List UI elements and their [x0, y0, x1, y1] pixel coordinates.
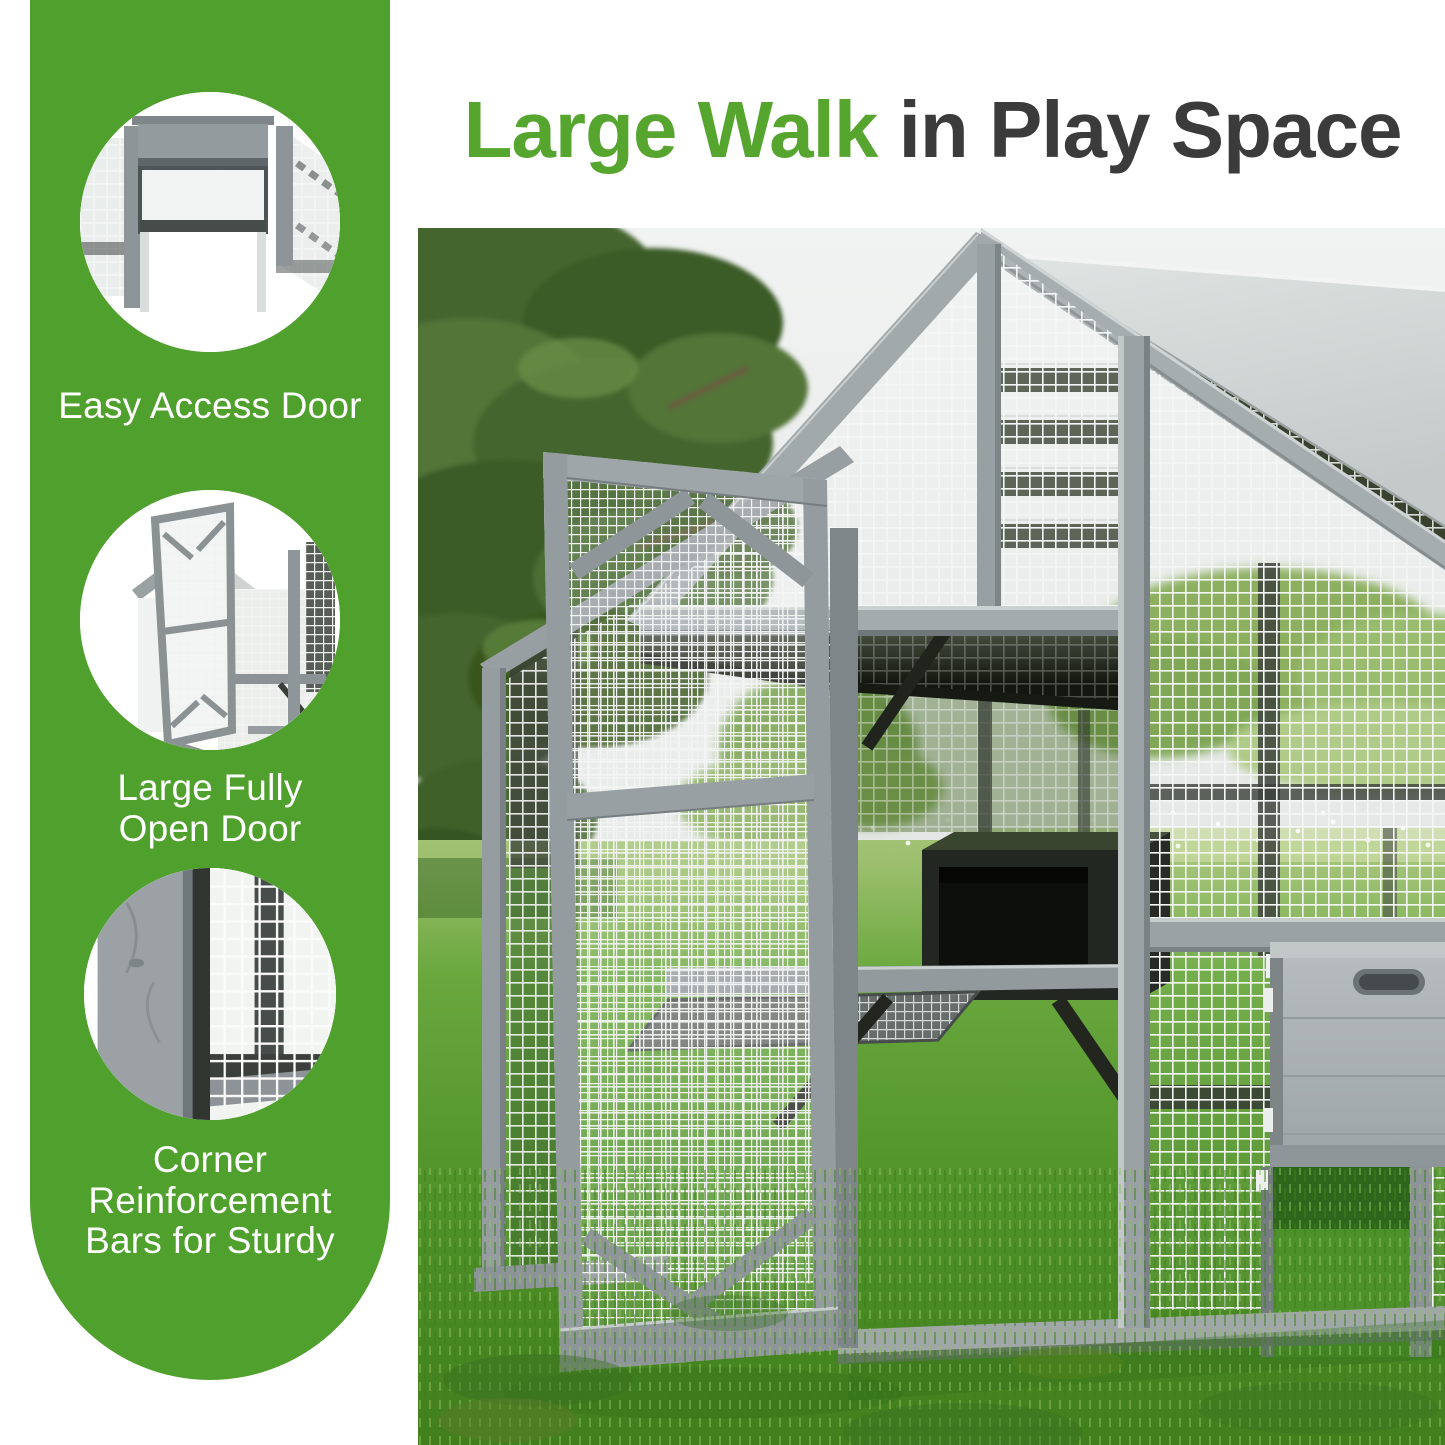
feature-thumb-corner-reinforcement [84, 868, 336, 1120]
feature-label-line: Easy Access Door [30, 386, 390, 427]
page-title: Large Walk in Play Space [420, 84, 1445, 176]
foreground-grass [418, 1168, 1445, 1445]
title-rest: in Play Space [877, 85, 1401, 174]
feature-label: Easy Access Door [30, 386, 390, 427]
feature-label-line: Large Fully [30, 768, 390, 809]
feature-thumb-large-fully-open-door [80, 490, 340, 750]
feature-thumb-easy-access-door [80, 92, 340, 352]
feature-label: Large Fully Open Door [30, 768, 390, 849]
feature-label-line: Corner [30, 1140, 390, 1181]
product-photo [418, 228, 1445, 1445]
walk-in-chicken-run-photo [418, 228, 1445, 1445]
corner-closeup-illustration [84, 868, 336, 1120]
access-door-closeup-illustration [80, 92, 340, 352]
feature-label-line: Bars for Sturdy [30, 1221, 390, 1262]
page: { "title": { "highlight": "Large Walk", … [0, 0, 1445, 1445]
nest-box [1263, 942, 1445, 1167]
title-highlight: Large Walk [464, 85, 878, 174]
feature-label-line: Reinforcement [30, 1181, 390, 1222]
feature-label: Corner Reinforcement Bars for Sturdy [30, 1140, 390, 1262]
feature-banner: Easy Access Door [30, 0, 390, 1380]
feature-label-line: Open Door [30, 809, 390, 850]
open-door-product-illustration [80, 490, 340, 750]
